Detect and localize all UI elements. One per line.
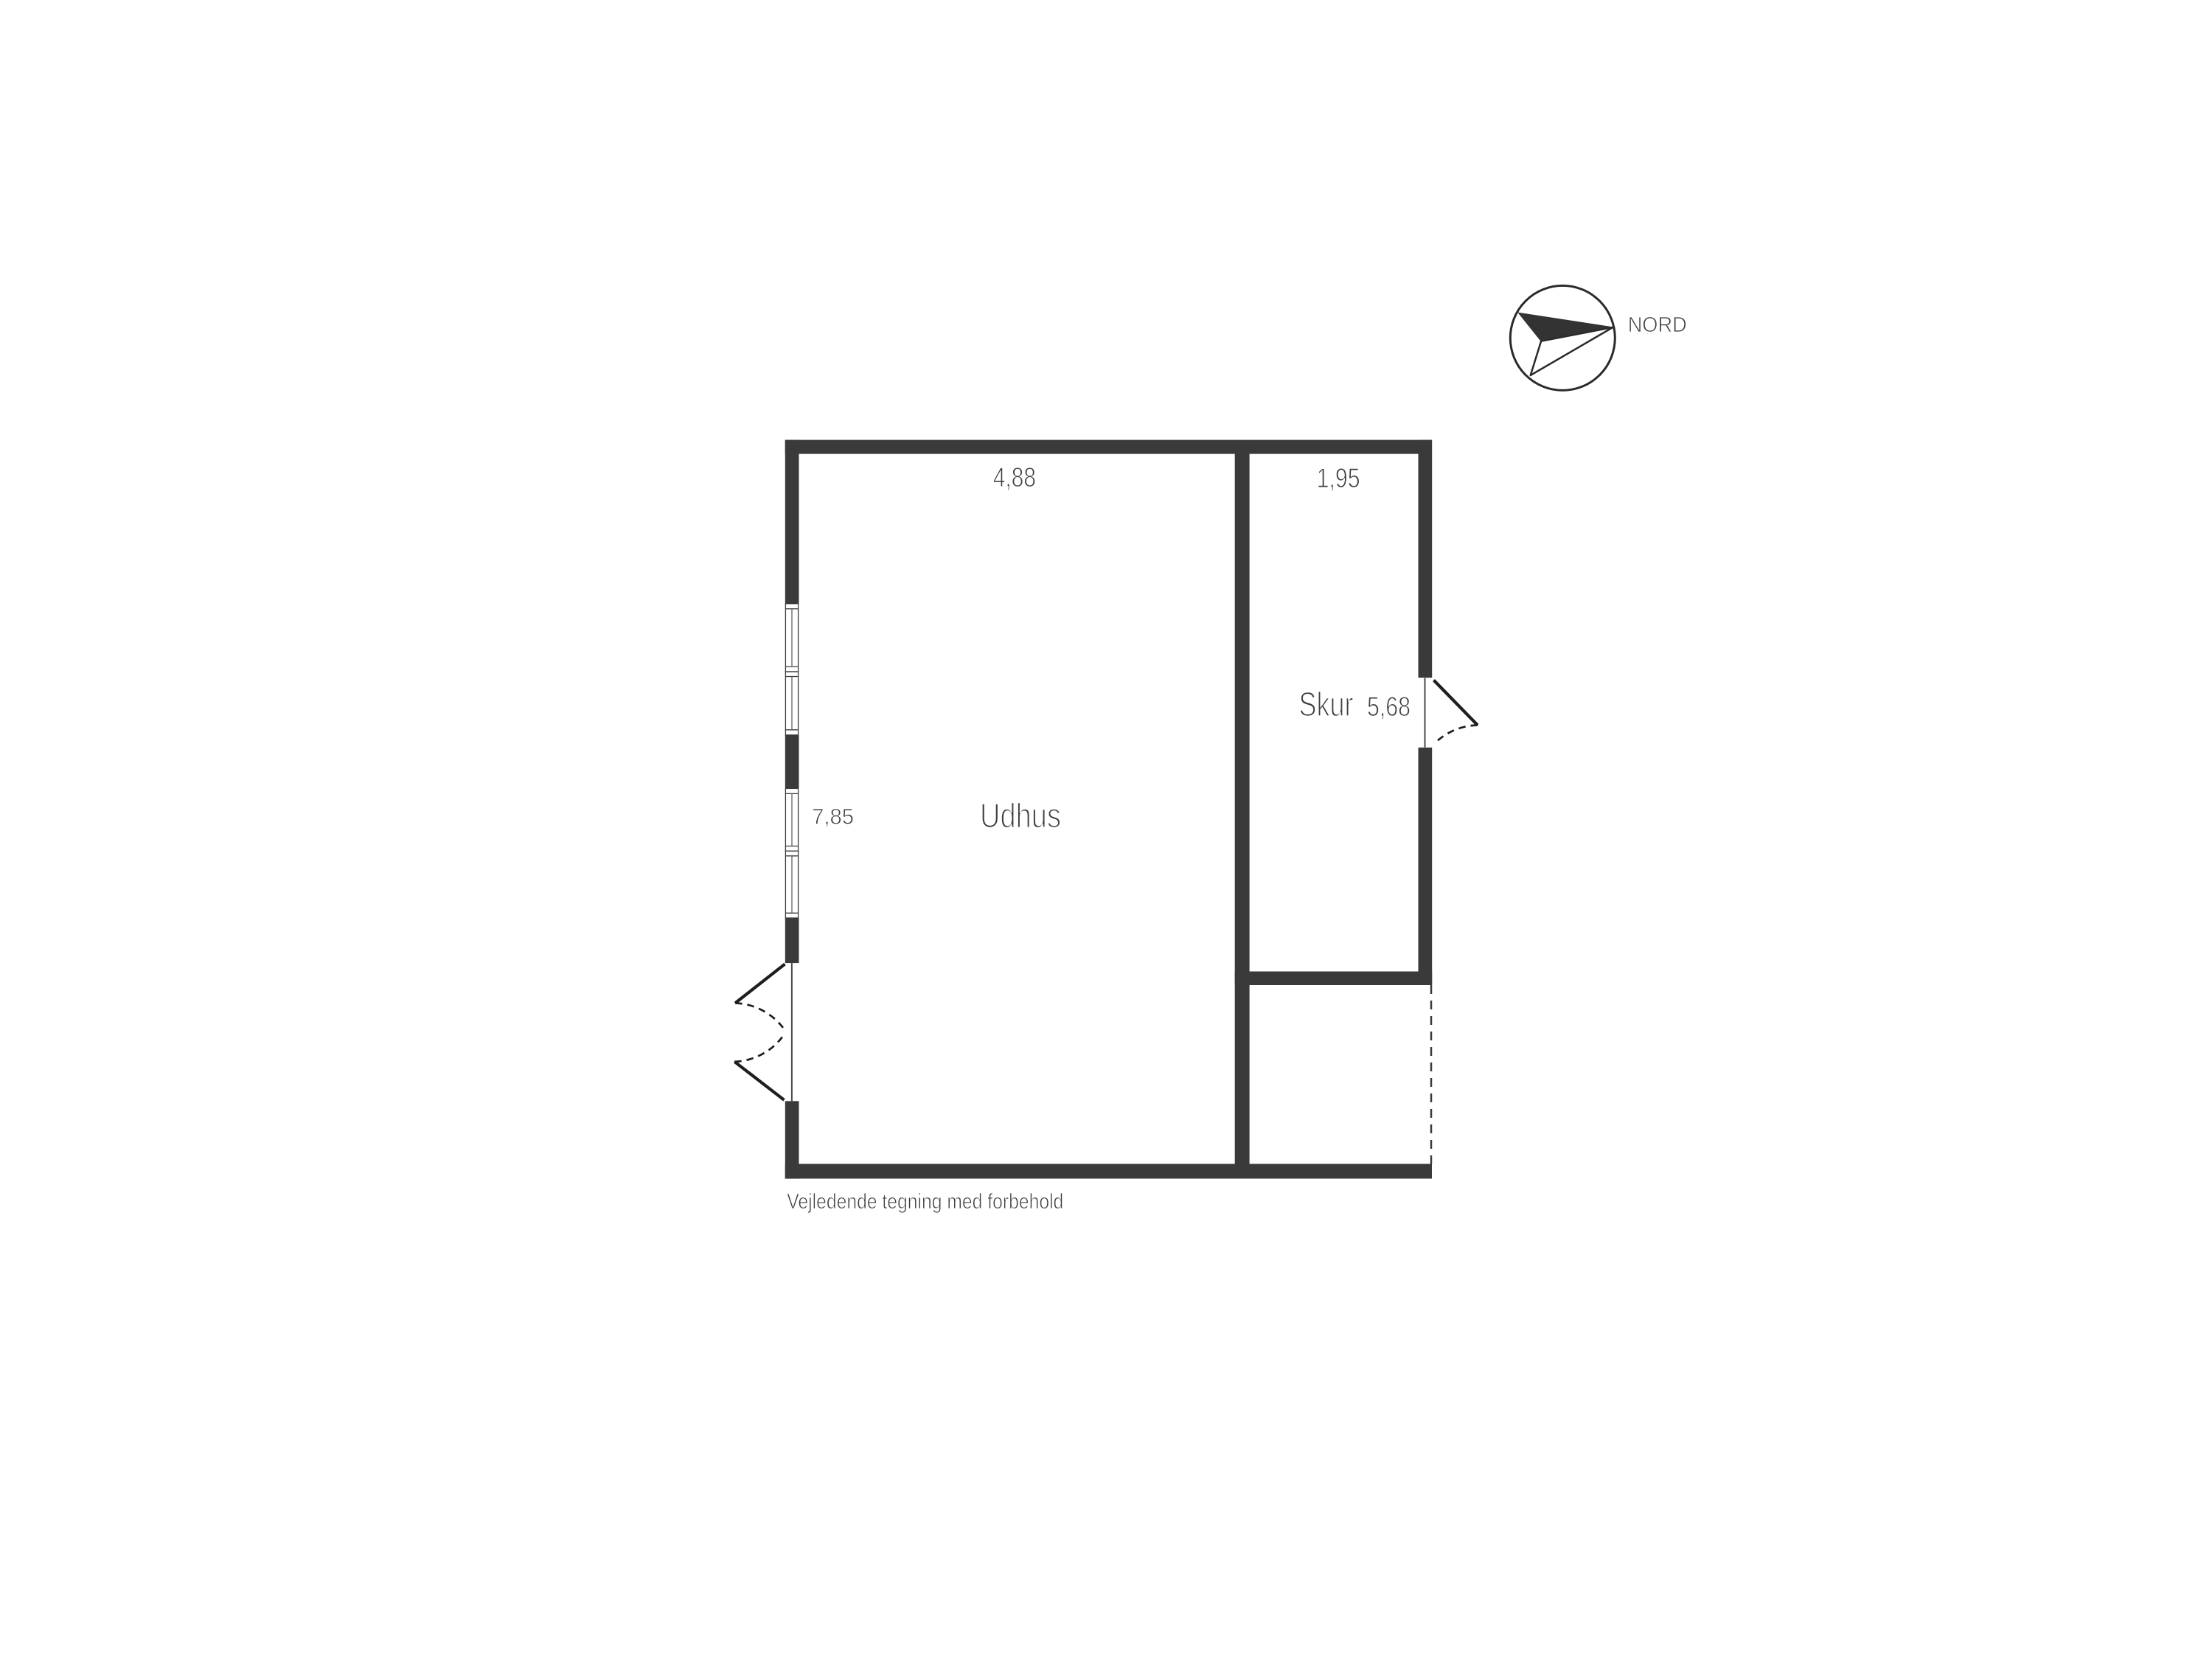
svg-text:NORD: NORD [1628, 313, 1687, 337]
svg-text:5,68: 5,68 [1367, 692, 1411, 722]
svg-text:Udhus: Udhus [980, 796, 1061, 835]
svg-text:1,95: 1,95 [1317, 463, 1360, 493]
svg-text:Vejledende tegning med forbeho: Vejledende tegning med forbehold [787, 1190, 1063, 1214]
svg-text:Skur: Skur [1299, 685, 1354, 723]
svg-text:4,88: 4,88 [993, 462, 1036, 493]
svg-text:7,85: 7,85 [812, 805, 854, 829]
